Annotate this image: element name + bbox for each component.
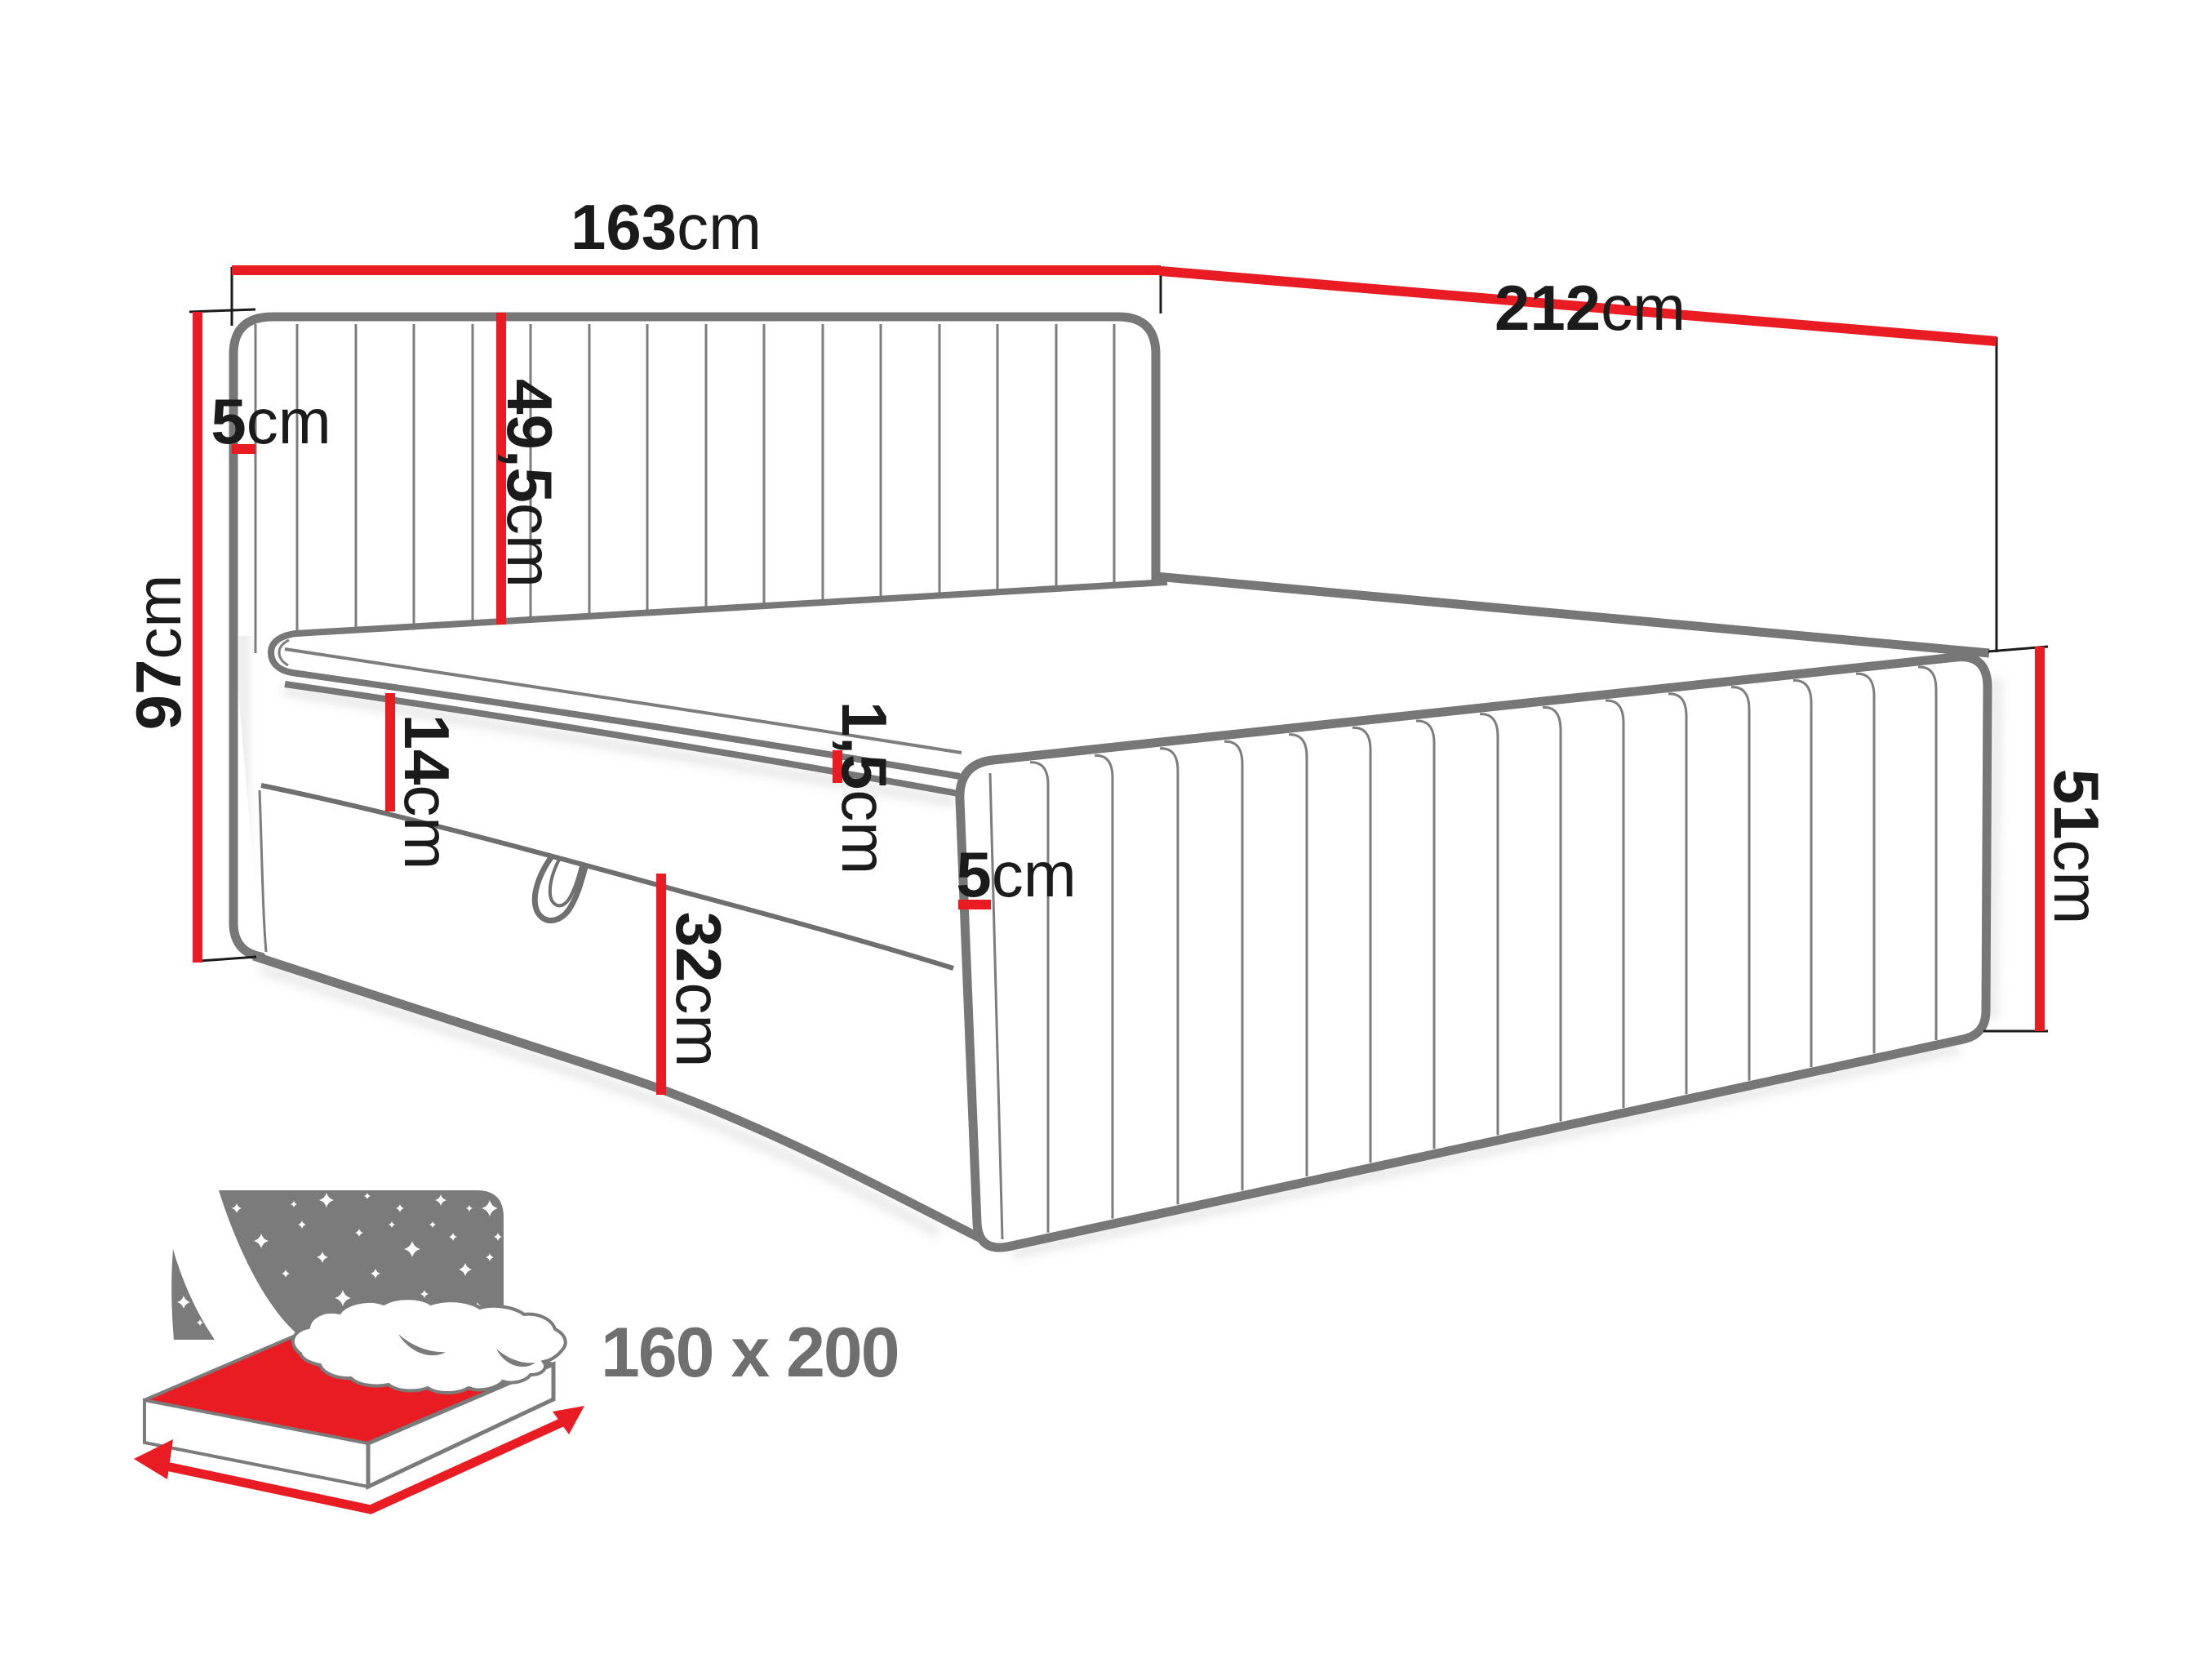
svg-text:212cm: 212cm [1495, 272, 1686, 344]
svg-text:49,5cm: 49,5cm [494, 379, 566, 588]
svg-text:163cm: 163cm [571, 191, 762, 263]
svg-text:32cm: 32cm [663, 912, 735, 1068]
svg-text:160 x 200: 160 x 200 [601, 1314, 899, 1392]
svg-text:5cm: 5cm [956, 838, 1076, 910]
svg-text:1,5cm: 1,5cm [828, 701, 900, 874]
svg-text:14cm: 14cm [391, 714, 463, 870]
svg-text:97cm: 97cm [122, 575, 194, 731]
svg-text:51cm: 51cm [2041, 769, 2112, 925]
svg-text:5cm: 5cm [211, 385, 331, 457]
